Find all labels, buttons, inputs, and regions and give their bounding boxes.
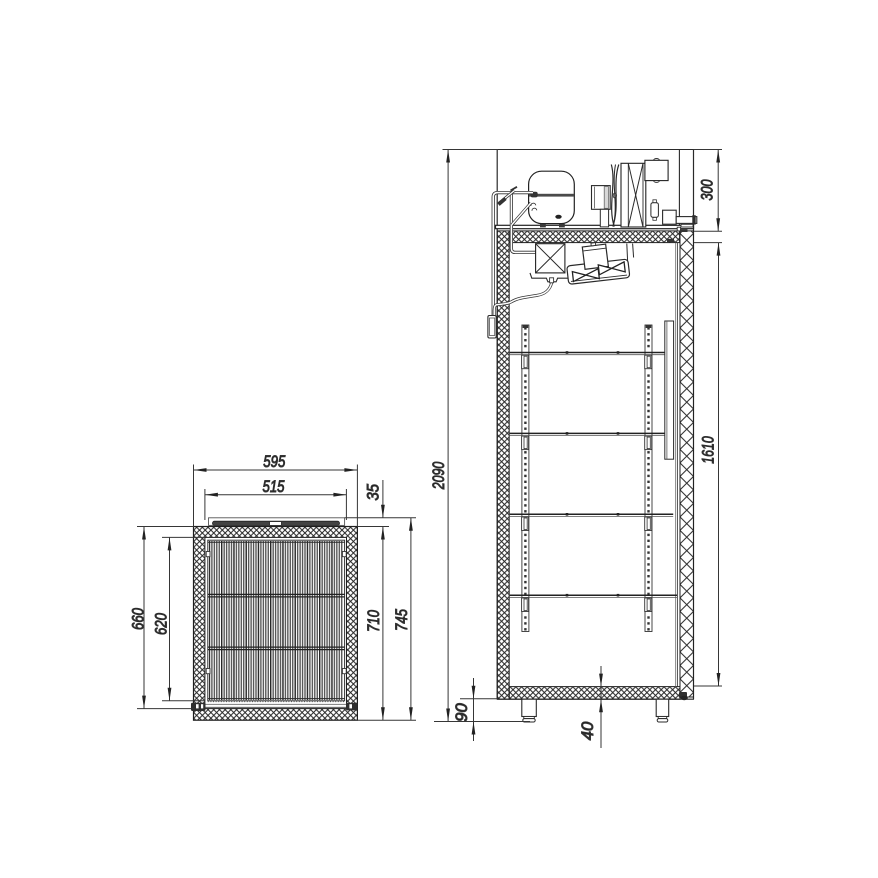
- svg-text:515: 515: [263, 477, 285, 496]
- svg-text:40: 40: [578, 721, 597, 740]
- svg-text:660: 660: [129, 608, 148, 630]
- svg-text:745: 745: [392, 609, 411, 631]
- svg-text:710: 710: [364, 610, 383, 632]
- svg-text:35: 35: [363, 484, 382, 501]
- svg-text:1610: 1610: [699, 436, 718, 464]
- svg-text:2090: 2090: [429, 461, 448, 490]
- svg-text:90: 90: [452, 703, 471, 722]
- svg-text:595: 595: [263, 452, 285, 471]
- svg-text:300: 300: [698, 179, 717, 200]
- svg-text:620: 620: [152, 613, 171, 635]
